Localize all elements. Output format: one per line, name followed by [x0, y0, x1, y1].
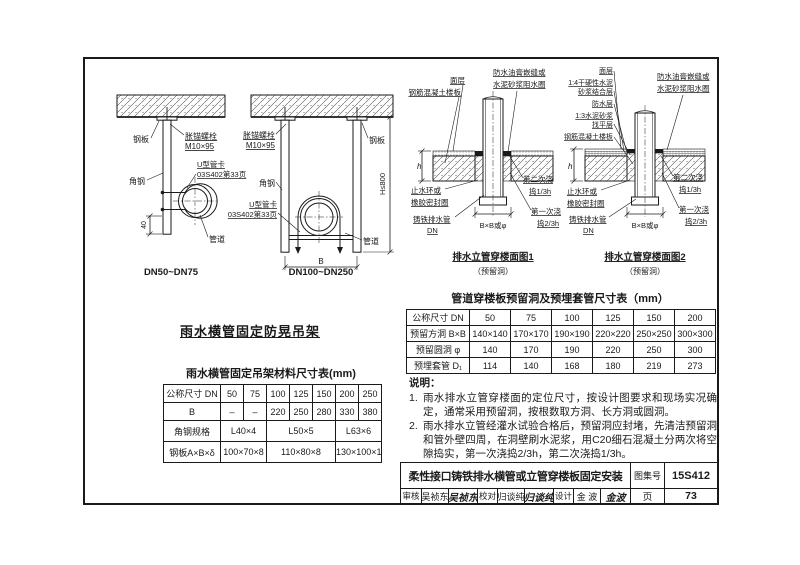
anchor-bolt-spec: M10×95	[185, 142, 215, 151]
second-pour-label-2: 捣1/3h	[679, 184, 701, 194]
checker-name: 归谈纯	[497, 488, 524, 503]
atlas-number: 15S412	[664, 463, 717, 488]
note-text: 雨水排水立管经灌水试验合格后，预留洞应封堵，先清洁预留洞和管外壁四周，在洞壁刷水…	[423, 419, 717, 461]
u-clamp-label: U型管卡	[197, 159, 225, 169]
checker-signature: 归谈纯	[524, 488, 553, 503]
surface-layer-label: 面层	[450, 76, 465, 85]
reviewer-signature: 吴祯东	[448, 488, 477, 503]
anchor-bolt-label: 胀锚螺栓	[185, 131, 217, 141]
steel-plate-label: 钢板	[133, 134, 149, 144]
detail-1-subtitle: （预留洞）	[473, 266, 513, 276]
note-text: 雨水排水立管穿楼面的定位尺寸，按设计图要求和现场实况确定，通常采用预留洞，按根数…	[423, 391, 717, 419]
dim-h-text: h	[568, 162, 573, 171]
note-item: 1. 雨水排水立管穿楼面的定位尺寸，按设计图要求和现场实况确定，通常采用预留洞，…	[409, 391, 717, 419]
sealant-right	[503, 151, 511, 156]
title-block: 柔性接口铸铁排水横管或立管穿楼板固定安装 图集号 15S412 审核 吴祯东 吴…	[400, 462, 717, 503]
leveling-layer-label-2: 找平层	[592, 120, 613, 129]
hanger-table-title: 雨水横管固定吊架材料尺寸表(mm)	[163, 365, 379, 381]
first-pour-label-1: 第一次浇	[679, 204, 709, 214]
designer-role: 设计	[553, 488, 573, 503]
atlas-number-label: 图集号	[630, 463, 664, 488]
table-row: 角钢规格 L40×4 L50×5 L63×6	[164, 421, 382, 442]
page-number: 73	[664, 488, 717, 503]
note-item: 2. 雨水排水立管经灌水试验合格后，预留洞应封堵，先清洁预留洞和管外壁四周，在洞…	[409, 419, 717, 461]
steel-plate-label: 钢板	[369, 135, 385, 145]
cast-iron-pipe-dn: DN	[583, 226, 594, 235]
cast-iron-pipe-label: 铸铁排水管	[413, 214, 451, 224]
first-pour-label-2: 捣2/3h	[685, 216, 707, 226]
sealant-left	[475, 151, 483, 156]
dim-h-text: h	[417, 162, 422, 171]
rc-slab-label: 钢筋混凝土楼板	[409, 87, 462, 97]
standard-atlas-page: 钢板 胀锚螺栓 M10×95 角钢 U型管卡 03S402第33页 管道 40 …	[0, 0, 800, 565]
floor-penetration-details-drawing: 面层 钢筋混凝土楼板 防水油膏嵌缝或 水泥砂浆阻水圈 止水环或 橡胶密封圈 铸铁…	[405, 61, 717, 289]
anchor-bolt-label: 胀锚螺栓	[243, 130, 275, 140]
table-row: 预埋套管 D₁ 114 140 168 180 219 273	[407, 358, 716, 374]
notes-heading: 说明：	[409, 376, 717, 390]
waterproof-layer-label: 防水层	[592, 99, 613, 108]
note-number: 2.	[409, 419, 423, 461]
note-number: 1.	[409, 391, 423, 419]
clamp-arrow-right	[337, 247, 343, 254]
table-row: 公称尺寸 DN 50 75 100 125 150 200 250	[164, 385, 382, 403]
designer-name: 金 波	[573, 488, 600, 503]
table-row: B – – 220 250 280 330 380	[164, 403, 382, 421]
sheet-title: 柔性接口铸铁排水横管或立管穿楼板固定安装	[401, 463, 630, 488]
checker-role: 校对	[477, 488, 497, 503]
hole-size-label: B×B或φ	[632, 220, 659, 230]
caption-dn50-dn75: DN50~DN75	[144, 267, 199, 278]
detail-1-title: 排水立管穿楼面图1	[452, 251, 534, 263]
cast-iron-pipe-label: 铸铁排水管	[569, 214, 607, 224]
hole-size-label: B×B或φ	[480, 220, 507, 230]
u-clamp-ref: 03S402第33页	[228, 209, 278, 219]
cast-iron-pipe-dn: DN	[427, 226, 438, 235]
bonding-layer-label-1: 1:4干硬性水泥	[568, 78, 613, 87]
second-pour-label-1: 第二次浇	[673, 172, 703, 182]
clamp-arrow-left	[295, 247, 301, 254]
second-pour-label-1: 第二次浇	[523, 174, 553, 184]
dim-40	[146, 214, 162, 237]
waterstop-label-2: 橡胶密封圈	[567, 198, 605, 208]
notes-section: 说明： 1. 雨水排水立管穿楼面的定位尺寸，按设计图要求和现场实况确定，通常采用…	[409, 376, 717, 461]
caption-dn100-dn250: DN100~DN250	[289, 267, 354, 278]
water-ring-label-1: 防水油膏嵌缝或	[657, 71, 710, 81]
waterstop-label-1: 止水环或	[567, 186, 597, 196]
hanger-material-table: 雨水横管固定吊架材料尺寸表(mm) 公称尺寸 DN 50 75 100 125 …	[163, 365, 379, 463]
hanger-section-title: 雨水横管固定防晃吊架	[85, 321, 415, 340]
rc-slab-label: 钢筋混凝土楼板	[564, 132, 613, 141]
table-row: 公称尺寸 DN 50 75 100 125 150 200	[407, 310, 716, 326]
anchor-bolt-spec: M10×95	[246, 141, 276, 150]
first-pour-label-2: 捣2/3h	[537, 218, 559, 228]
water-ring-label-2: 水泥砂浆阻水圈	[493, 79, 546, 89]
sleeve-size-table: 管道穿楼板预留洞及预埋套管尺寸表（mm） 公称尺寸 DN 50 75 100 1…	[406, 290, 714, 374]
bonding-layer-label-2: 砂浆结合层	[578, 87, 613, 96]
waterstop-label-1: 止水环或	[411, 185, 441, 195]
water-ring-label-2: 水泥砂浆阻水圈	[657, 83, 710, 93]
pipe-label: 管道	[209, 234, 225, 244]
hanger-details-drawing: 钢板 胀锚螺栓 M10×95 角钢 U型管卡 03S402第33页 管道 40 …	[99, 89, 404, 299]
surface-layer-label: 面层	[599, 67, 613, 75]
first-pour-label-1: 第一次浇	[531, 206, 561, 216]
u-clamp-ref: 03S402第33页	[197, 169, 247, 179]
leveling-layer-label-1: 1:3水泥砂浆	[575, 111, 613, 120]
table-row: 预留圆洞 φ 140 170 190 220 250 300	[407, 342, 716, 358]
reviewer-name: 吴祯东	[421, 488, 448, 503]
hanger-large-labels: 胀锚螺栓 M10×95 钢板 角钢 U型管卡 03S402第33页 管道 B H…	[228, 123, 387, 278]
table-row: 预留方洞 B×B 140×140 170×170 190×190 220×220…	[407, 326, 716, 342]
waterstop-label-2: 橡胶密封圈	[411, 197, 449, 207]
table-row: 钢板A×B×δ 100×70×8 110×80×8 130×100×10	[164, 442, 382, 463]
detail-2-subtitle: （预留洞）	[625, 266, 665, 276]
angle-steel-label: 角钢	[129, 176, 145, 186]
dim-h-text: H≤800	[378, 173, 387, 195]
designer-signature: 金波	[600, 488, 630, 503]
page-label: 页	[630, 488, 664, 503]
pipe-label: 管道	[363, 236, 379, 246]
angle-steel-label: 角钢	[259, 178, 275, 188]
second-pour-label-2: 捣1/3h	[529, 186, 551, 196]
detail-2-title: 排水立管穿楼面图2	[604, 251, 685, 263]
sleeve-table-title: 管道穿楼板预留洞及预埋套管尺寸表（mm）	[406, 290, 714, 306]
reviewer-role: 审核	[401, 488, 421, 503]
dim-b-text: B	[318, 257, 323, 266]
dim-40-text: 40	[141, 221, 148, 229]
u-clamp-label: U型管卡	[249, 199, 277, 209]
sealant-right	[655, 149, 663, 153]
drawing-sheet: 钢板 胀锚螺栓 M10×95 角钢 U型管卡 03S402第33页 管道 40 …	[83, 57, 719, 505]
water-ring-label-1: 防水油膏嵌缝或	[493, 67, 546, 77]
